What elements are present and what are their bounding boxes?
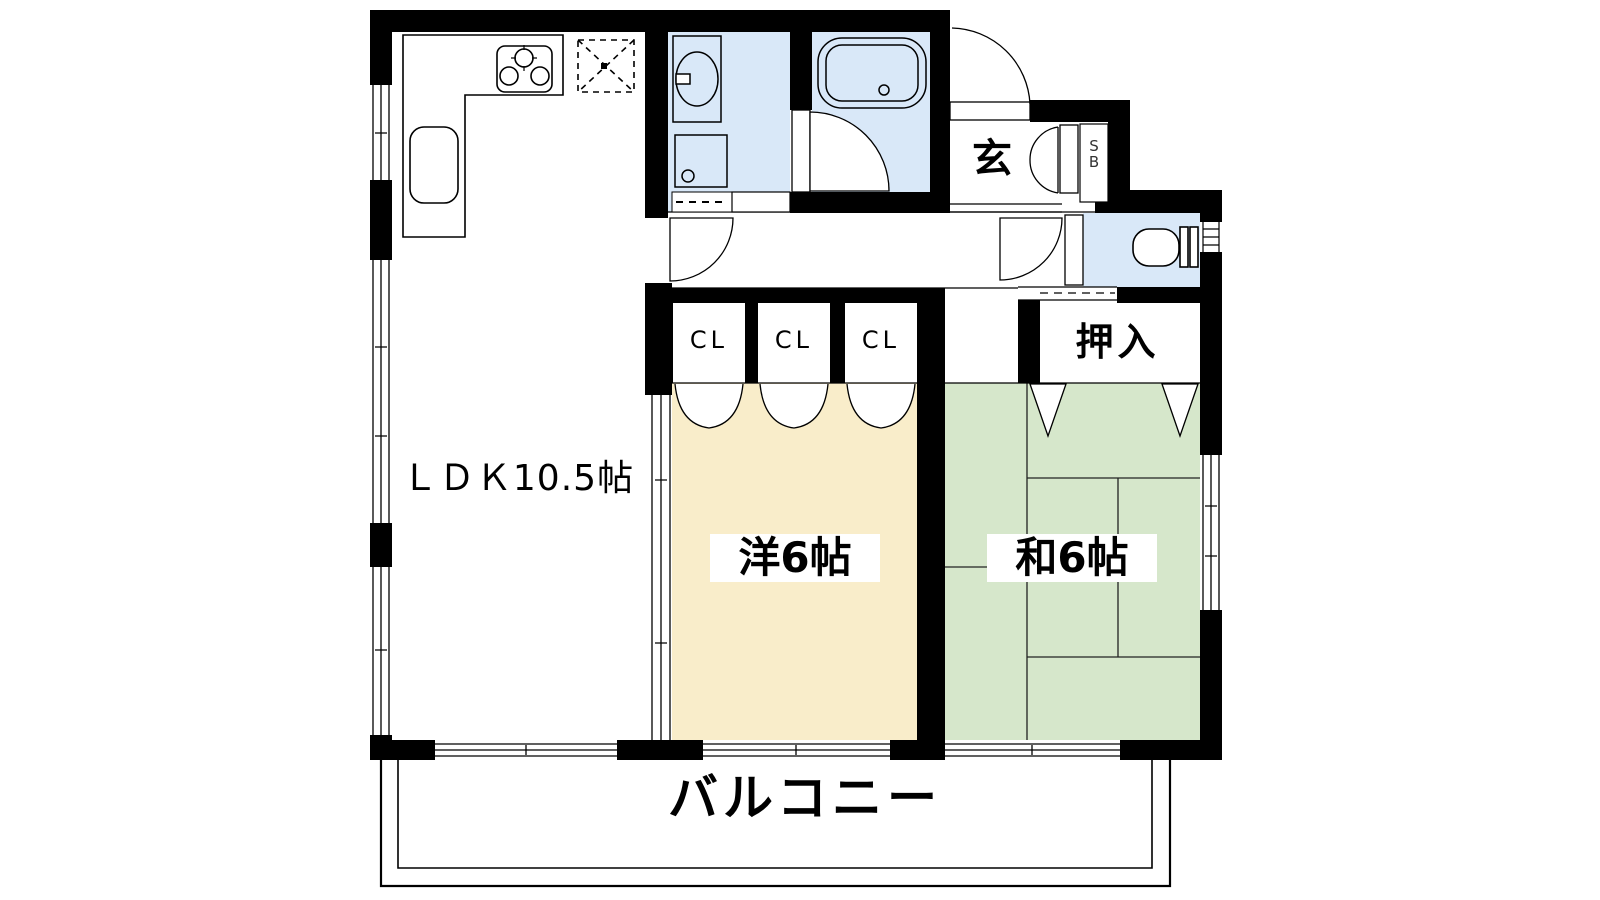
wall-top	[370, 10, 930, 32]
wall-bath-entrance	[930, 10, 950, 213]
wall-room-divider	[917, 288, 945, 760]
closet-label: CL	[845, 328, 917, 353]
wall-left-1	[370, 10, 392, 85]
wall-hall-bottom	[645, 288, 945, 303]
wall-left-2	[370, 180, 392, 260]
wall-washroom-bath	[790, 32, 812, 110]
western-room-label: 洋6帖	[710, 534, 880, 582]
floor-plan: ＬＤＫ10.5帖 洋6帖 和6帖 CL CL CL 押入 玄 S B バルコニー	[0, 0, 1600, 900]
entrance-label: 玄	[966, 138, 1018, 180]
wall-cl-left	[645, 302, 673, 383]
window-japanese-room	[1200, 455, 1222, 610]
burner-icon	[500, 67, 518, 85]
wall-entrance-top	[1030, 100, 1130, 122]
wall-oshiire-left	[1018, 300, 1040, 383]
wall-bottom-4	[1120, 740, 1222, 760]
wall-bottom-1	[370, 740, 435, 760]
floor-plan-drawing	[0, 0, 1600, 900]
toilet-tank-icon	[1190, 227, 1198, 267]
front-door-swing	[952, 28, 1030, 104]
fridge-space-center	[601, 63, 607, 69]
closet-label: CL	[758, 328, 830, 353]
japanese-room-label: 和6帖	[987, 534, 1157, 582]
ldk-western-sliding-door	[650, 395, 672, 740]
wall-cl-mid1	[745, 302, 758, 383]
wall-bottom-2	[617, 740, 703, 760]
window-left-kitchen	[370, 85, 392, 180]
entrance-double-door	[1030, 127, 1058, 193]
wall-right-2	[1200, 252, 1222, 455]
toilet-fixture	[1133, 227, 1198, 267]
window-toilet	[1200, 222, 1222, 252]
burner-icon	[531, 67, 549, 85]
front-door-panel	[950, 102, 1030, 120]
toilet-tank-icon	[1180, 227, 1188, 267]
wall-right-1	[1200, 190, 1222, 222]
burner-icon	[515, 49, 533, 67]
toilet-bowl-icon	[1133, 229, 1179, 266]
wall-right-3	[1200, 610, 1222, 760]
toilet-door-panel	[1065, 215, 1083, 285]
window-left-ldk-upper	[370, 260, 392, 523]
wall-kitchen-washroom	[645, 32, 668, 192]
window-balcony-western	[703, 742, 890, 758]
shoebox-label-b: B	[1089, 153, 1099, 171]
window-left-ldk-lower	[370, 567, 392, 735]
balcony-label: バルコニー	[620, 772, 990, 825]
closet-label: CL	[673, 328, 745, 353]
hall-door-swing	[1000, 218, 1062, 280]
faucet-icon	[676, 74, 690, 84]
entrance-door-panel	[1060, 125, 1078, 193]
wall-bottom-3	[890, 740, 945, 760]
wall-left-3	[370, 523, 392, 567]
washroom-slide-door	[732, 192, 790, 212]
kitchen	[403, 35, 634, 237]
ldk-label: ＬＤＫ10.5帖	[393, 460, 643, 498]
oshiire-label: 押入	[1050, 323, 1185, 363]
washroom-entry	[672, 192, 790, 212]
wall-washroom-bottom	[790, 192, 950, 213]
wall-hall-left-top	[645, 192, 668, 218]
sink-icon	[410, 127, 458, 203]
shoebox-label: S B	[1081, 138, 1107, 170]
bath-door-panel	[792, 110, 810, 192]
window-balcony-japanese	[945, 742, 1120, 758]
window-balcony-ldk	[435, 742, 617, 758]
wall-cl-mid2	[830, 302, 845, 383]
ldk-hall-door-swing	[670, 218, 733, 281]
